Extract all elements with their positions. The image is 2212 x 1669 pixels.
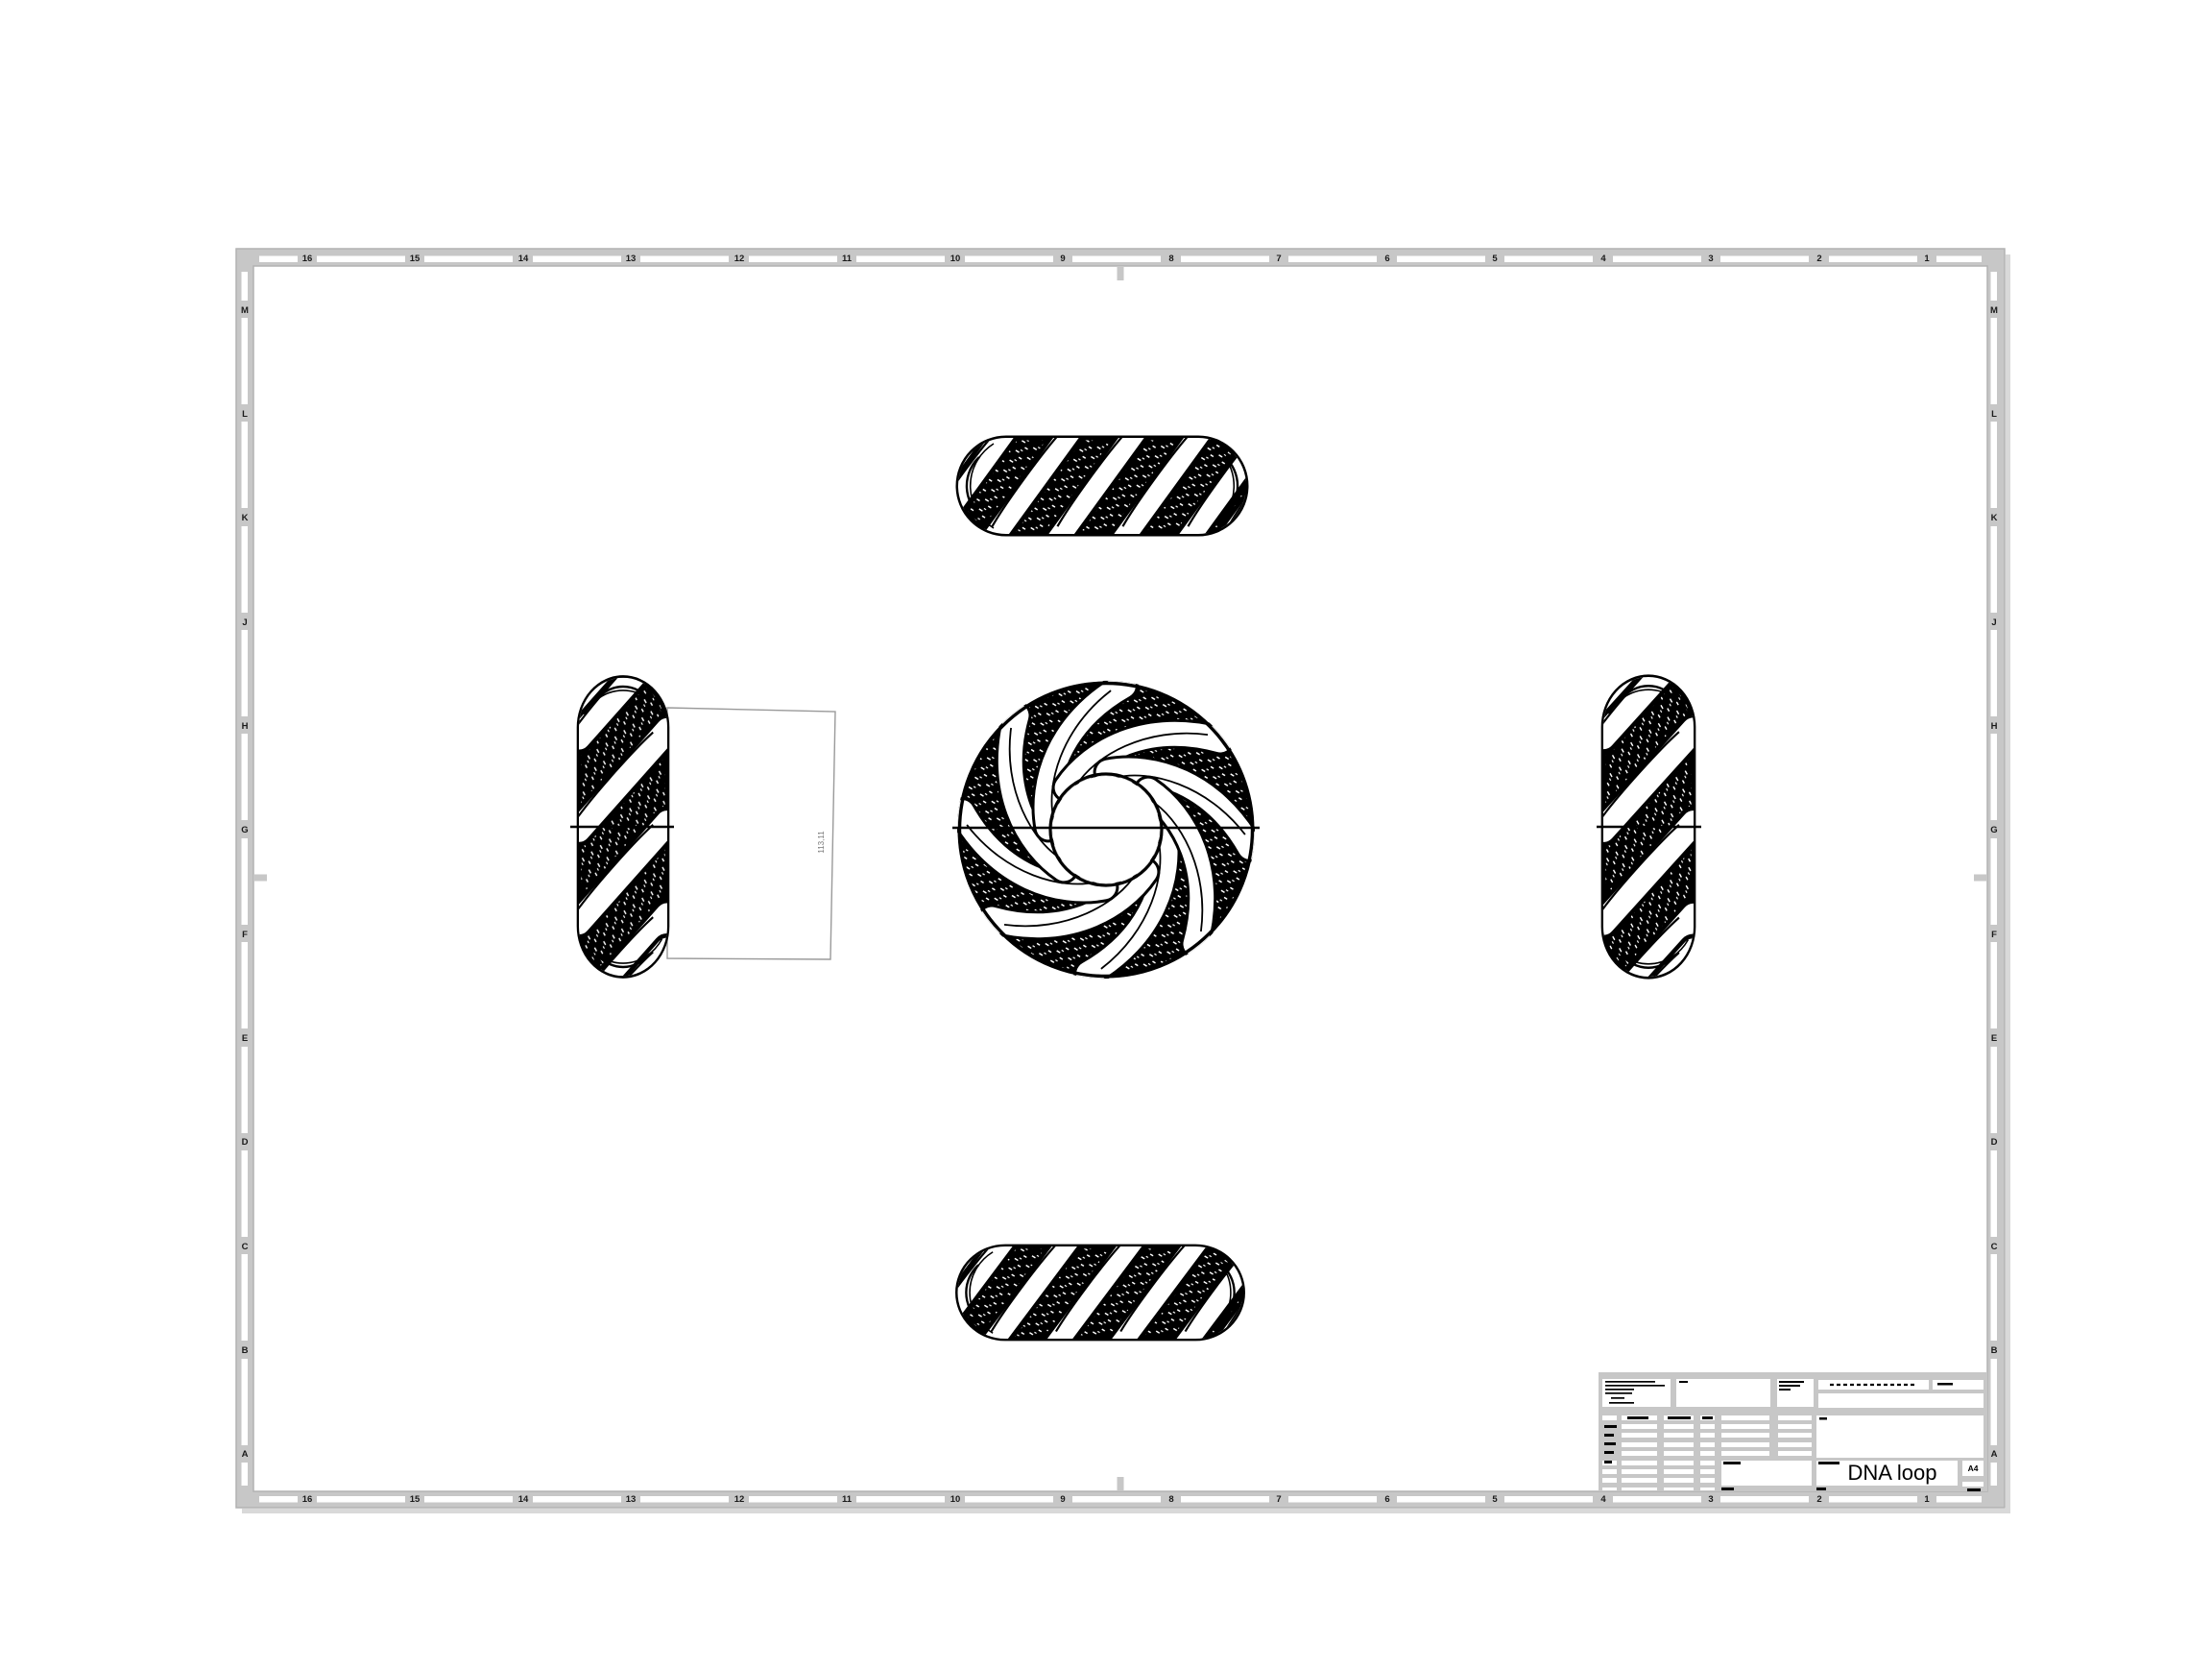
svg-text:8: 8 xyxy=(1168,254,1173,264)
svg-text:15: 15 xyxy=(410,1494,421,1505)
svg-text:8: 8 xyxy=(1168,1494,1173,1505)
svg-text:L: L xyxy=(1991,409,1997,420)
svg-text:6: 6 xyxy=(1384,254,1389,264)
svg-text:D: D xyxy=(1991,1137,1998,1148)
svg-text:14: 14 xyxy=(518,1494,529,1505)
svg-text:M: M xyxy=(1990,305,1998,316)
svg-text:7: 7 xyxy=(1276,1494,1281,1505)
svg-text:H: H xyxy=(1991,721,1998,732)
svg-text:J: J xyxy=(242,617,247,628)
svg-text:1: 1 xyxy=(1924,254,1930,264)
svg-text:A: A xyxy=(1991,1449,1998,1460)
svg-text:5: 5 xyxy=(1492,254,1498,264)
svg-text:1: 1 xyxy=(1924,1494,1930,1505)
svg-text:12: 12 xyxy=(734,1494,745,1505)
svg-text:D: D xyxy=(242,1137,249,1148)
svg-text:DNA loop: DNA loop xyxy=(1848,1461,1937,1485)
svg-text:A4: A4 xyxy=(1968,1463,1979,1473)
svg-text:J: J xyxy=(1991,617,1996,628)
svg-text:3: 3 xyxy=(1708,254,1713,264)
svg-text:13: 13 xyxy=(626,1494,637,1505)
svg-text:16: 16 xyxy=(302,254,313,264)
svg-text:C: C xyxy=(1991,1242,1998,1252)
svg-text:G: G xyxy=(1990,825,1997,835)
svg-text:6: 6 xyxy=(1384,1494,1389,1505)
svg-text:E: E xyxy=(242,1033,248,1044)
svg-text:F: F xyxy=(1991,930,1997,940)
svg-text:2: 2 xyxy=(1816,254,1821,264)
svg-text:4: 4 xyxy=(1600,254,1606,264)
svg-text:113,11: 113,11 xyxy=(817,831,826,854)
svg-text:K: K xyxy=(242,513,249,523)
svg-text:4: 4 xyxy=(1600,1494,1606,1505)
svg-text:L: L xyxy=(242,409,248,420)
svg-text:G: G xyxy=(241,825,248,835)
svg-text:10: 10 xyxy=(950,254,961,264)
svg-text:15: 15 xyxy=(410,254,421,264)
svg-text:B: B xyxy=(1991,1345,1998,1356)
svg-text:F: F xyxy=(242,930,248,940)
svg-text:7: 7 xyxy=(1276,254,1281,264)
svg-text:2: 2 xyxy=(1816,1494,1821,1505)
svg-text:16: 16 xyxy=(302,1494,313,1505)
svg-text:11: 11 xyxy=(842,1494,853,1505)
svg-text:13: 13 xyxy=(626,254,637,264)
svg-text:12: 12 xyxy=(734,254,745,264)
svg-text:E: E xyxy=(1991,1033,1997,1044)
svg-text:5: 5 xyxy=(1492,1494,1498,1505)
svg-text:10: 10 xyxy=(950,1494,961,1505)
svg-text:3: 3 xyxy=(1708,1494,1713,1505)
svg-text:11: 11 xyxy=(842,254,853,264)
svg-text:B: B xyxy=(242,1345,249,1356)
svg-text:9: 9 xyxy=(1060,254,1065,264)
svg-text:9: 9 xyxy=(1060,1494,1065,1505)
svg-text:M: M xyxy=(241,305,249,316)
svg-text:A: A xyxy=(242,1449,249,1460)
svg-text:H: H xyxy=(242,721,249,732)
svg-text:K: K xyxy=(1991,513,1998,523)
svg-text:14: 14 xyxy=(518,254,529,264)
svg-text:C: C xyxy=(242,1242,249,1252)
